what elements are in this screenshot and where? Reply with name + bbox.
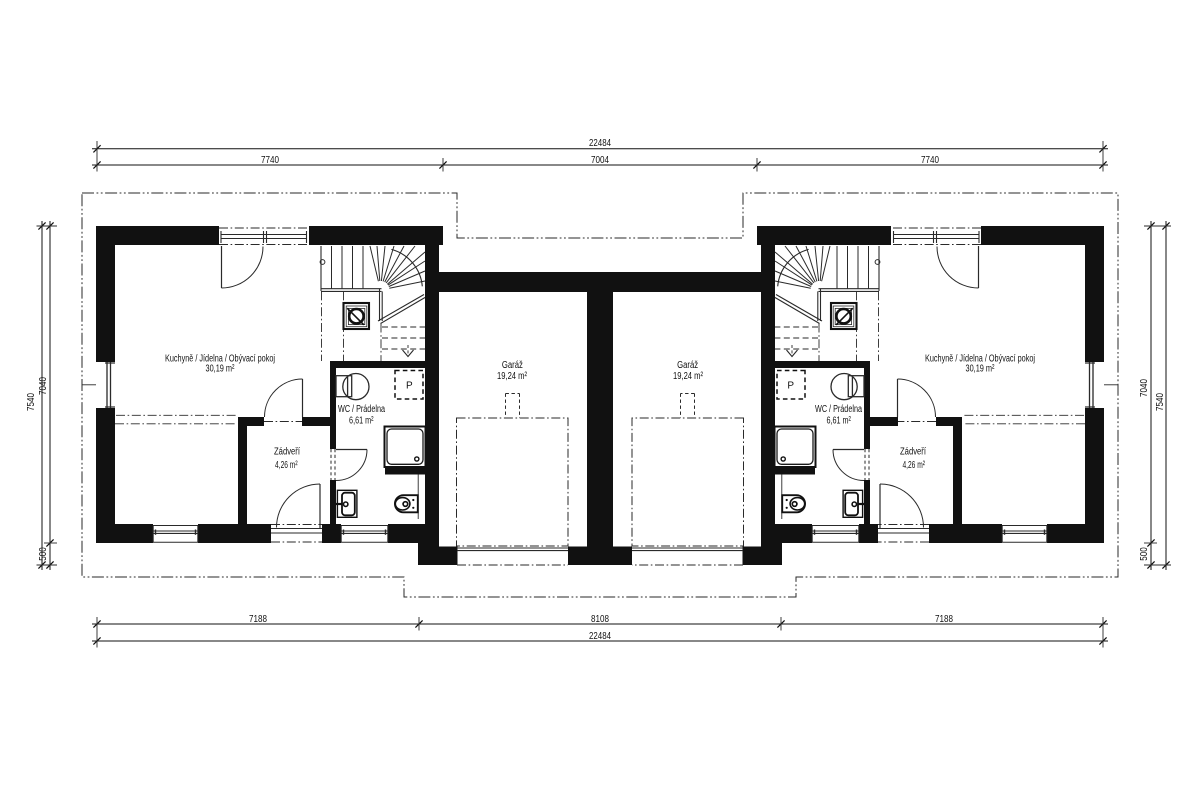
svg-text:7740: 7740 xyxy=(921,155,939,166)
svg-text:Garáž: Garáž xyxy=(502,360,523,371)
svg-text:Zádveří: Zádveří xyxy=(900,446,926,457)
svg-text:6,61 m²: 6,61 m² xyxy=(349,415,374,426)
svg-text:P: P xyxy=(406,381,413,392)
svg-text:22484: 22484 xyxy=(589,138,611,149)
svg-text:P: P xyxy=(787,381,794,392)
svg-text:30,19 m²: 30,19 m² xyxy=(206,364,235,375)
svg-text:7040: 7040 xyxy=(1139,379,1150,397)
svg-text:Garáž: Garáž xyxy=(677,360,698,371)
svg-text:7188: 7188 xyxy=(249,614,267,625)
svg-text:7040: 7040 xyxy=(38,377,49,395)
svg-text:Zádveří: Zádveří xyxy=(274,446,300,457)
svg-text:7540: 7540 xyxy=(1155,393,1166,411)
svg-text:7540: 7540 xyxy=(26,393,37,411)
svg-text:19,24 m²: 19,24 m² xyxy=(497,371,528,382)
svg-text:500: 500 xyxy=(1139,547,1150,561)
svg-text:7004: 7004 xyxy=(591,155,609,166)
svg-text:8108: 8108 xyxy=(591,614,609,625)
svg-text:30,19 m²: 30,19 m² xyxy=(966,364,995,375)
svg-text:19,24 m²: 19,24 m² xyxy=(673,371,704,382)
svg-text:WC / Prádelna: WC / Prádelna xyxy=(338,404,385,415)
svg-text:4,26 m²: 4,26 m² xyxy=(275,460,298,471)
svg-text:4,26 m²: 4,26 m² xyxy=(902,460,925,471)
svg-text:500: 500 xyxy=(38,547,49,561)
svg-text:7740: 7740 xyxy=(261,155,279,166)
svg-text:WC / Prádelna: WC / Prádelna xyxy=(815,404,862,415)
svg-text:6,61 m²: 6,61 m² xyxy=(826,415,851,426)
svg-text:7188: 7188 xyxy=(935,614,953,625)
svg-text:22484: 22484 xyxy=(589,631,611,642)
